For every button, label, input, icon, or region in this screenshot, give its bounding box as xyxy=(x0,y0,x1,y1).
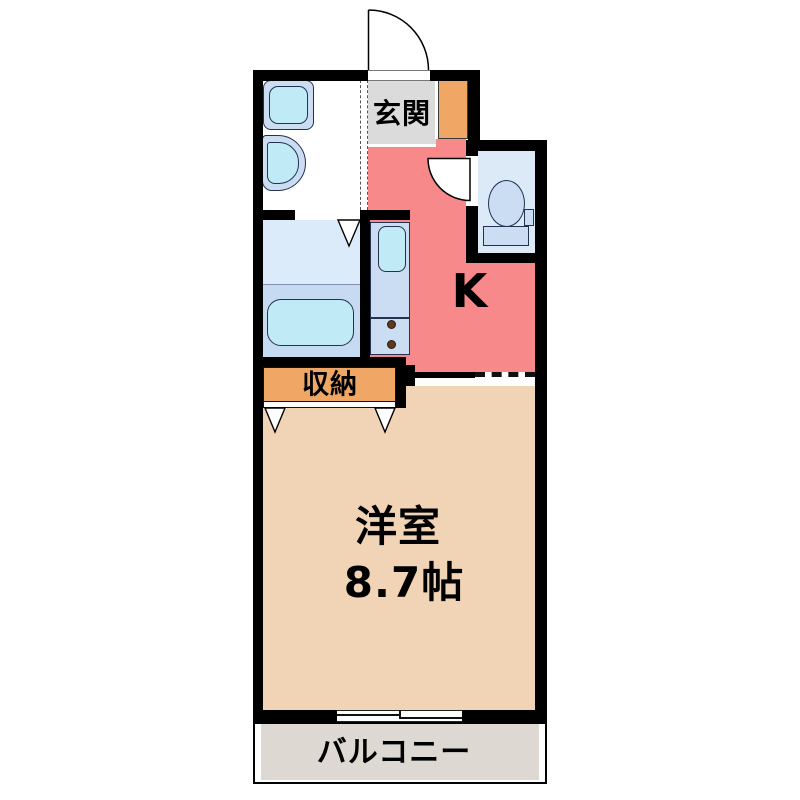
closet-door-swing-icon xyxy=(375,408,395,432)
western-room-label: 洋室 xyxy=(355,506,441,548)
toilet-door-arc-icon xyxy=(428,159,470,201)
genkan-label: 玄関 xyxy=(373,100,431,128)
entrance-door-arc-icon xyxy=(369,10,429,70)
kitchen-label: K xyxy=(452,268,489,314)
western-room-size-label: 8.7帖 xyxy=(344,562,464,604)
closet-door-swing-icon xyxy=(265,408,285,432)
closet-label: 収納 xyxy=(302,372,358,399)
bath-door-swing-icon xyxy=(338,220,360,246)
balcony-label: バルコニー xyxy=(317,738,471,768)
floor-plan: 玄関 K 収納 洋室 8.7帖 バルコニー xyxy=(0,0,800,800)
